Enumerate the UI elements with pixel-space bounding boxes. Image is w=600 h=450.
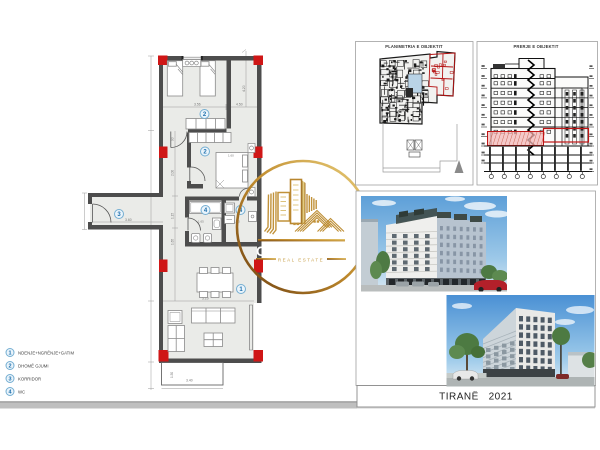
svg-text:NDENJE+NGRÊNJE+GATIM: NDENJE+NGRÊNJE+GATIM [18, 350, 74, 355]
svg-text:REAL ESTATE: REAL ESTATE [278, 258, 324, 263]
svg-text:1.60: 1.60 [228, 154, 234, 158]
svg-text:2: 2 [8, 364, 11, 370]
svg-text:3: 3 [8, 377, 11, 383]
svg-text:DHOMË GJUMI: DHOMË GJUMI [18, 363, 49, 368]
svg-text:1.15: 1.15 [171, 213, 175, 219]
svg-text:PLANIMETRIA E OBJEKTIT: PLANIMETRIA E OBJEKTIT [385, 44, 443, 49]
svg-text:3.56: 3.56 [194, 103, 201, 107]
svg-text:2.00: 2.00 [171, 170, 175, 176]
svg-text:4.20: 4.20 [242, 85, 246, 92]
svg-text:1.65: 1.65 [198, 220, 204, 224]
svg-text:WC: WC [18, 389, 25, 394]
svg-text:3.60: 3.60 [125, 218, 132, 222]
svg-text:KORRIDOR: KORRIDOR [18, 376, 41, 381]
svg-text:3.40: 3.40 [186, 379, 193, 383]
svg-text:PRERJE E OBJEKTIT: PRERJE E OBJEKTIT [513, 44, 558, 49]
svg-text:1.50: 1.50 [170, 372, 174, 378]
svg-text:1.65: 1.65 [171, 239, 175, 245]
svg-text:TIRANË 2021: TIRANË 2021 [439, 390, 513, 402]
svg-text:1: 1 [8, 351, 11, 357]
svg-text:4.50: 4.50 [236, 103, 243, 107]
